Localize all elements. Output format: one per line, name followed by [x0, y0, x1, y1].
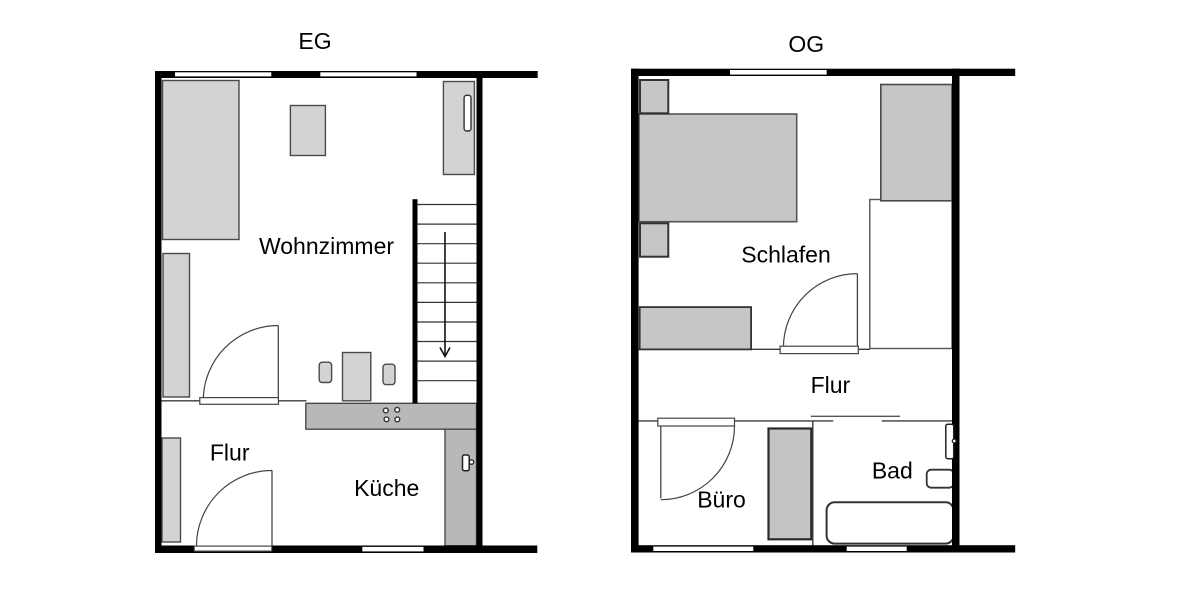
svg-text:Flur: Flur — [811, 372, 851, 398]
svg-text:EG: EG — [298, 28, 331, 54]
svg-text:Flur: Flur — [210, 440, 250, 466]
svg-text:Schlafen: Schlafen — [741, 241, 831, 267]
svg-text:OG: OG — [788, 31, 824, 57]
svg-text:Wohnzimmer: Wohnzimmer — [259, 233, 394, 259]
svg-text:Küche: Küche — [354, 475, 419, 501]
svg-text:Bad: Bad — [872, 458, 913, 484]
svg-text:Büro: Büro — [697, 487, 746, 513]
